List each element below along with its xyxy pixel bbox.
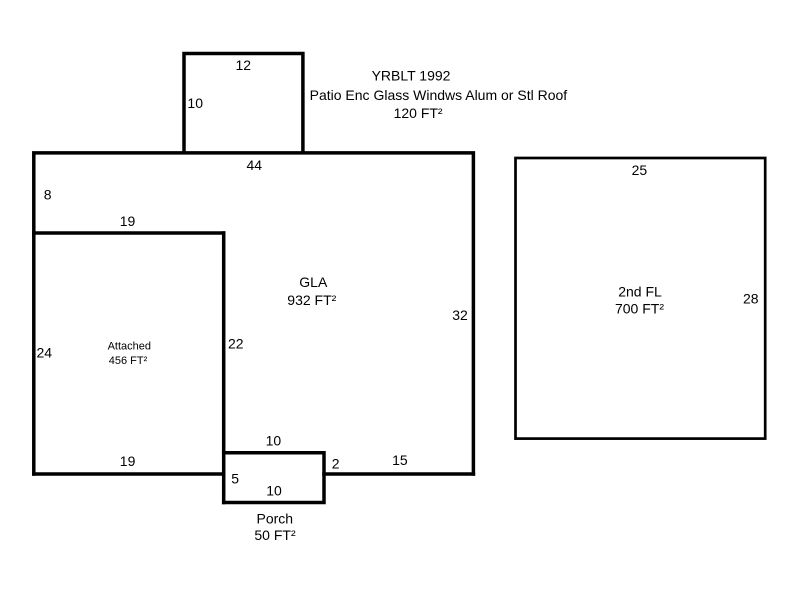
- svg-text:2nd FL: 2nd FL: [618, 283, 662, 299]
- svg-text:15: 15: [392, 452, 408, 468]
- svg-text:932 FT²: 932 FT²: [287, 292, 336, 308]
- svg-text:24: 24: [37, 344, 53, 360]
- svg-text:2: 2: [332, 456, 340, 472]
- svg-text:32: 32: [452, 307, 468, 323]
- svg-text:Attached: Attached: [108, 340, 151, 352]
- svg-text:12: 12: [236, 57, 252, 73]
- svg-text:19: 19: [120, 453, 136, 469]
- svg-text:19: 19: [120, 213, 136, 229]
- svg-text:700 FT²: 700 FT²: [615, 301, 664, 317]
- svg-text:456 FT²: 456 FT²: [109, 355, 148, 367]
- svg-text:44: 44: [247, 157, 263, 173]
- svg-text:10: 10: [187, 95, 203, 111]
- svg-text:22: 22: [228, 335, 244, 351]
- svg-text:28: 28: [743, 290, 759, 306]
- svg-text:25: 25: [632, 162, 648, 178]
- svg-text:Patio Enc Glass Windws Alum or: Patio Enc Glass Windws Alum or Stl Roof: [310, 87, 568, 103]
- svg-text:50 FT²: 50 FT²: [254, 527, 296, 543]
- svg-text:10: 10: [266, 483, 282, 499]
- svg-text:Porch: Porch: [257, 511, 294, 527]
- svg-text:120 FT²: 120 FT²: [394, 105, 443, 121]
- svg-text:GLA: GLA: [299, 274, 328, 290]
- svg-text:8: 8: [44, 187, 52, 203]
- svg-text:YRBLT 1992: YRBLT 1992: [372, 68, 451, 84]
- svg-text:5: 5: [231, 471, 239, 487]
- svg-text:10: 10: [266, 433, 282, 449]
